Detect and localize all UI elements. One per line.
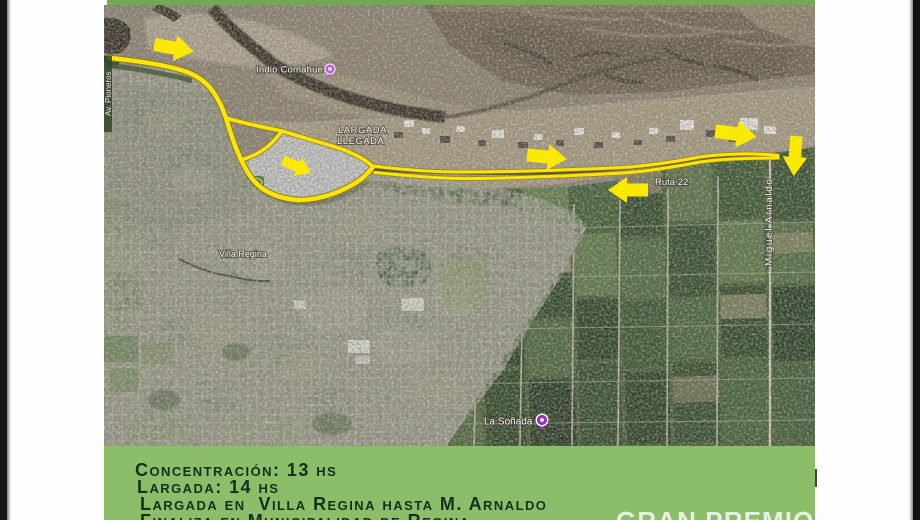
svg-text:Ruta 22: Ruta 22: [655, 177, 688, 188]
svg-text:Miguel Arnaldo: Miguel Arnaldo: [764, 177, 775, 266]
svg-text:Villa Regina: Villa Regina: [219, 249, 267, 259]
svg-text:Av. Pioneros: Av. Pioneros: [104, 71, 113, 116]
svg-text:Indio Comahue: Indio Comahue: [256, 65, 323, 76]
svg-text:LARGADA: LARGADA: [338, 125, 387, 136]
svg-text:La Soñada: La Soñada: [484, 417, 533, 428]
svg-text:LLEGADA: LLEGADA: [337, 136, 384, 147]
